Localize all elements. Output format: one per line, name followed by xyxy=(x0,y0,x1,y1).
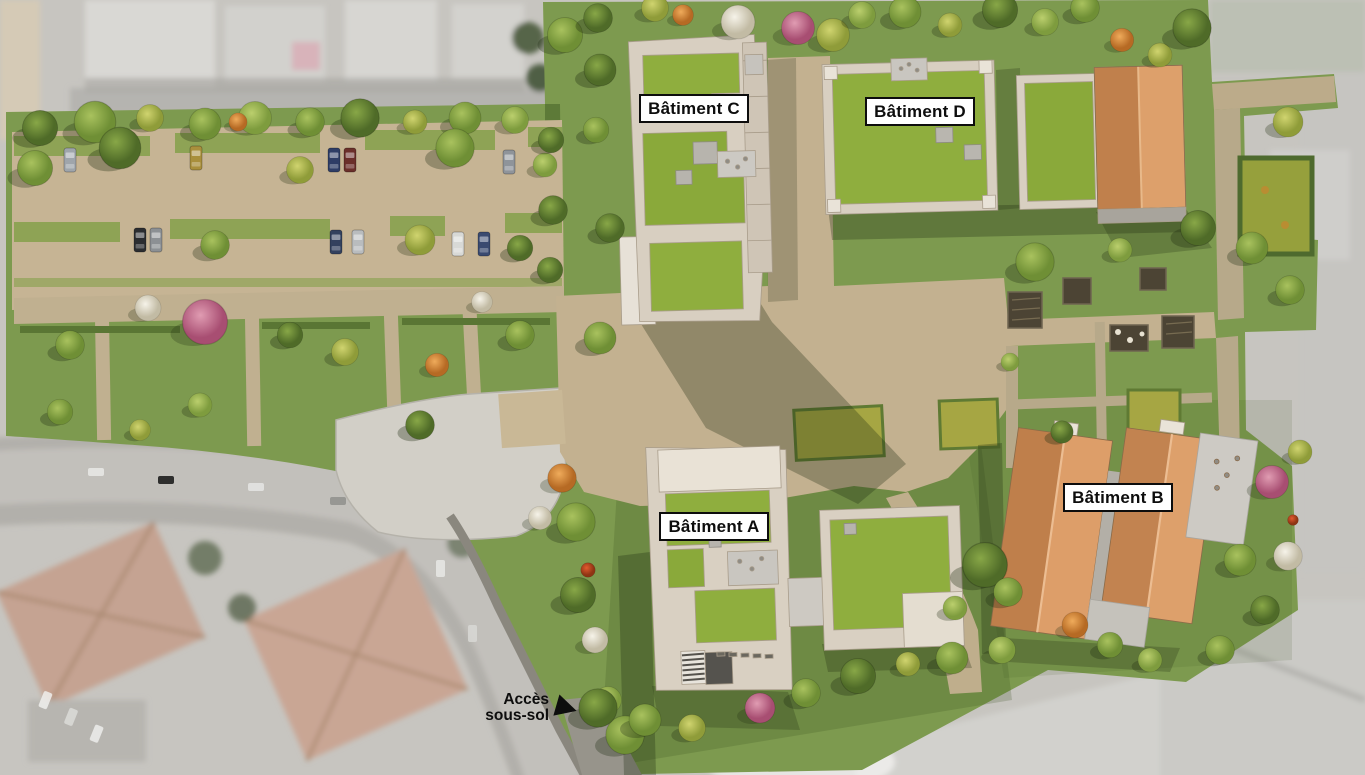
building-d-label[interactable]: Bâtiment D xyxy=(865,97,975,126)
building-a-label[interactable]: Bâtiment A xyxy=(659,512,769,541)
basement-access-line1: Accès xyxy=(463,692,549,708)
site-plan: Bâtiment C Bâtiment D Bâtiment A Bâtimen… xyxy=(0,0,1365,775)
building-c-footprint xyxy=(614,34,773,325)
building-c-label[interactable]: Bâtiment C xyxy=(639,94,749,123)
basement-access-annotation: Accès sous-sol xyxy=(463,692,549,724)
basement-access-line2: sous-sol xyxy=(463,708,549,724)
parking-area xyxy=(12,120,564,310)
building-b-label[interactable]: Bâtiment B xyxy=(1063,483,1173,512)
building-d-tile-roof xyxy=(1094,65,1186,223)
building-a-footprint xyxy=(646,443,795,695)
